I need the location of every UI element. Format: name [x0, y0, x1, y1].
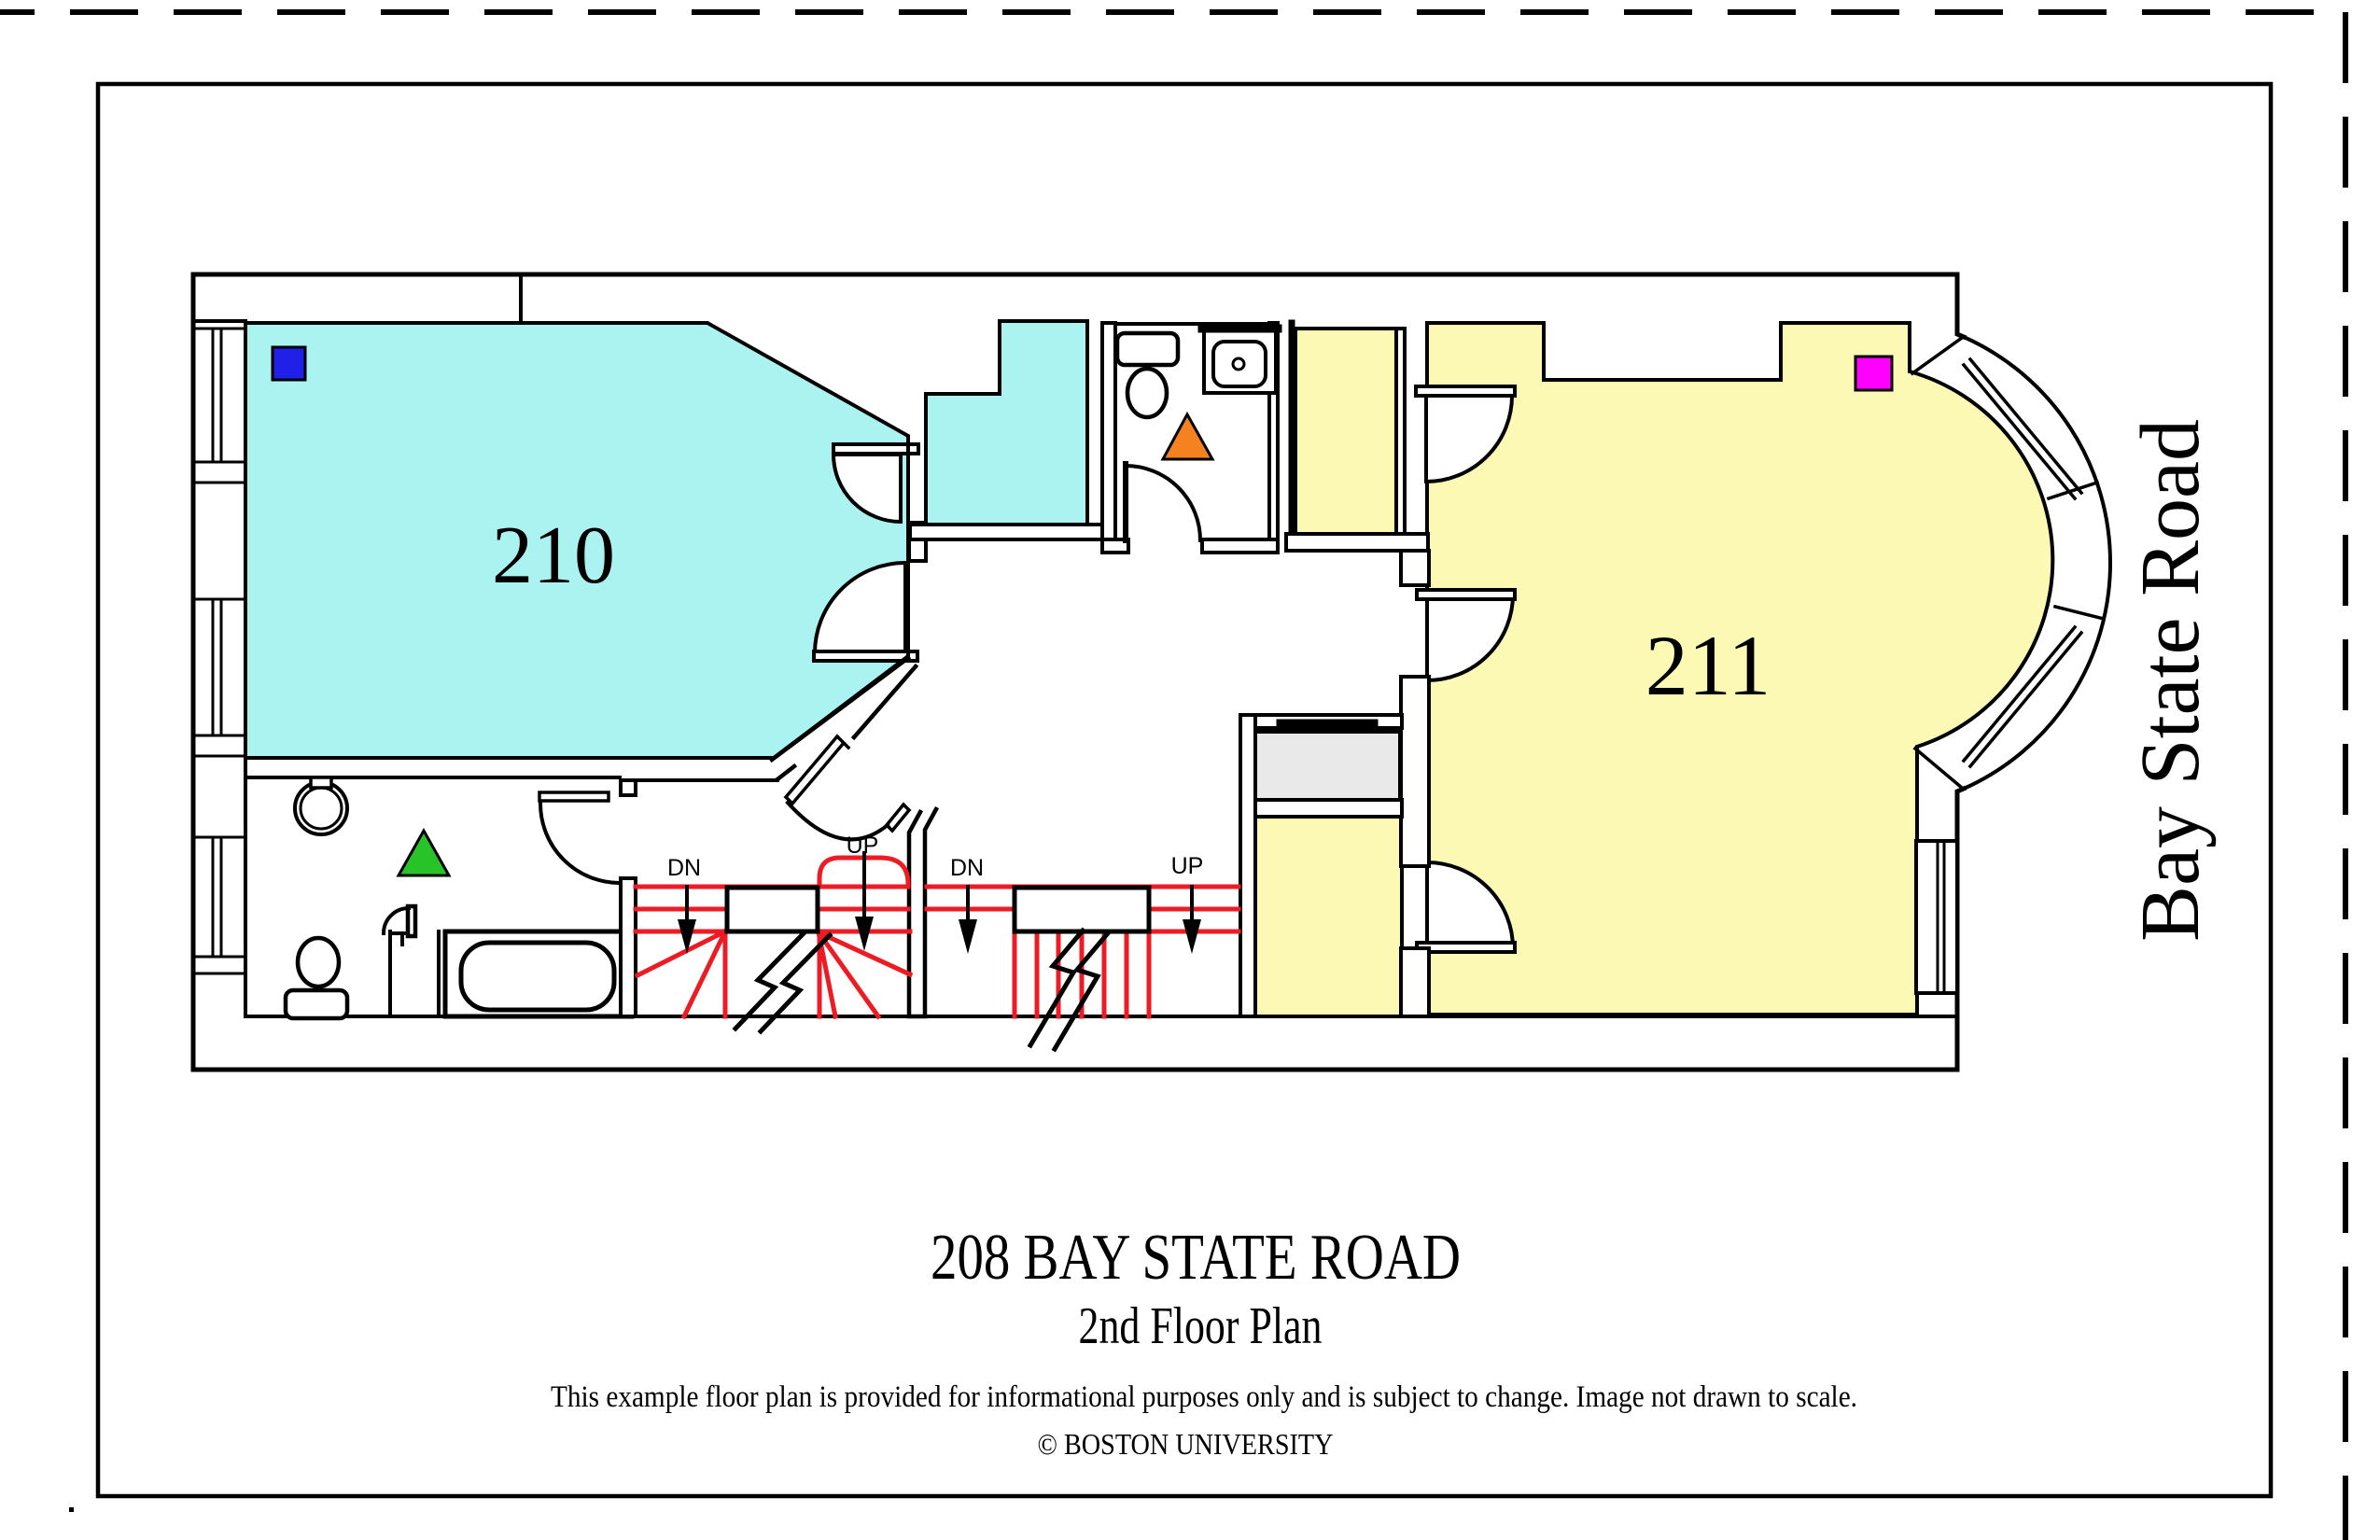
svg-text:This example floor plan is pro: This example floor plan is provided for … — [551, 1380, 1857, 1414]
svg-text:© BOSTON UNIVERSITY: © BOSTON UNIVERSITY — [1038, 1427, 1334, 1461]
svg-text:Bay State Road: Bay State Road — [2124, 419, 2217, 942]
svg-text:208 BAY STATE ROAD: 208 BAY STATE ROAD — [931, 1222, 1461, 1294]
svg-text:211: 211 — [1645, 618, 1771, 713]
svg-text:210: 210 — [492, 511, 615, 601]
svg-text:DN: DN — [667, 855, 701, 881]
svg-text:UP: UP — [1171, 853, 1204, 879]
svg-text:DN: DN — [950, 855, 984, 881]
svg-text:2nd Floor Plan: 2nd Floor Plan — [1079, 1297, 1323, 1355]
